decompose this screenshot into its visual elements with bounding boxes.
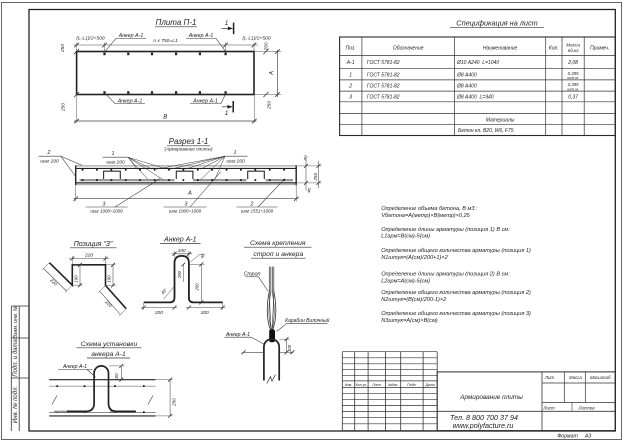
- svg-text:N1штук=(А(см)/200+1)×2: N1штук=(А(см)/200+1)×2: [381, 255, 448, 261]
- svg-text:А3: А3: [584, 434, 591, 440]
- svg-text:1: 1: [225, 110, 229, 117]
- svg-text:А: А: [270, 71, 276, 76]
- svg-text:220: 220: [84, 253, 93, 259]
- svg-text:строп и анкера: строп и анкера: [253, 251, 303, 258]
- svg-text:Vбетона=А(метр)×В(метр)×0,25: Vбетона=А(метр)×В(метр)×0,25: [381, 213, 470, 219]
- svg-text:Ø10 А240 L=1040: Ø10 А240 L=1040: [456, 60, 499, 66]
- svg-text:Подп.: Подп.: [407, 383, 416, 387]
- svg-text:Обозначение: Обозначение: [393, 46, 424, 52]
- svg-text:www.polyfacture.ru: www.polyfacture.ru: [453, 421, 514, 430]
- svg-text:2: 2: [348, 84, 352, 90]
- svg-text:Анкер А-1: Анкер А-1: [163, 237, 197, 244]
- svg-text:100: 100: [178, 248, 186, 253]
- svg-text:Схема крепления: Схема крепления: [250, 240, 306, 247]
- svg-text:анкера А-1: анкера А-1: [91, 351, 126, 358]
- svg-text:190: 190: [74, 275, 79, 283]
- svg-text:100: 100: [114, 373, 119, 381]
- svg-text:250: 250: [177, 270, 182, 279]
- svg-text:Изм.: Изм.: [345, 383, 352, 387]
- svg-text:ГОСТ 5781-82: ГОСТ 5781-82: [367, 94, 400, 100]
- svg-text:Армирование плиты: Армирование плиты: [459, 394, 523, 401]
- svg-text:шаг 1551=1000: шаг 1551=1000: [241, 209, 274, 214]
- svg-text:Позиция “З”: Позиция “З”: [74, 241, 113, 248]
- svg-text:3: 3: [103, 202, 106, 208]
- svg-text:250: 250: [60, 44, 66, 53]
- svg-text:(L-L1)/2+500: (L-L1)/2+500: [76, 36, 104, 42]
- svg-text:ГОСТ 5781-82: ГОСТ 5781-82: [367, 60, 400, 66]
- svg-text:Масса: Масса: [569, 375, 583, 380]
- svg-text:Бетон кл. В20, W6, F75: Бетон кл. В20, W6, F75: [458, 128, 514, 134]
- svg-text:(L-L1)/2+500: (L-L1)/2+500: [242, 36, 270, 42]
- svg-text:шаг 1000=1000: шаг 1000=1000: [169, 209, 202, 214]
- svg-text:Спецификация на лист: Спецификация на лист: [456, 19, 537, 28]
- svg-text:Определение общего количества: Определение общего количества арматуры (…: [381, 311, 531, 317]
- svg-text:1: 1: [234, 150, 237, 156]
- svg-text:шаг 200: шаг 200: [106, 160, 125, 166]
- svg-text:Карабин Вилочный: Карабин Вилочный: [285, 317, 330, 324]
- svg-text:3: 3: [349, 94, 352, 100]
- svg-text:Определение общего количества: Определение общего количества арматуры (…: [381, 248, 531, 254]
- svg-text:200: 200: [200, 310, 209, 316]
- svg-text:ГОСТ 5781-82: ГОСТ 5781-82: [367, 72, 400, 78]
- svg-text:3: 3: [185, 202, 188, 208]
- svg-text:0,37: 0,37: [568, 94, 578, 100]
- svg-text:Дата: Дата: [424, 383, 434, 387]
- svg-text:Плита П-1: Плита П-1: [156, 18, 197, 27]
- svg-text:N3штук=А(см)×В(см): N3штук=А(см)×В(см): [381, 318, 438, 324]
- svg-text:Формат: Формат: [557, 434, 578, 440]
- svg-text:Анкер А-1: Анкер А-1: [225, 332, 250, 338]
- svg-text:Определение длины арматуры (по: Определение длины арматуры (позиция 1) В…: [381, 227, 510, 233]
- svg-text:Определение общего количества: Определение общего количества арматуры (…: [381, 290, 531, 296]
- svg-text:Определение объема бетона, В м: Определение объема бетона, В м3 :: [381, 206, 478, 212]
- svg-text:L2арм=А(см)-5(см): L2арм=А(см)-5(см): [381, 278, 430, 284]
- svg-text:2: 2: [47, 150, 51, 156]
- svg-text:Кол.: Кол.: [549, 46, 559, 52]
- svg-text:L1арм=В(см)-5(см): L1арм=В(см)-5(см): [381, 234, 430, 240]
- svg-text:250: 250: [171, 398, 176, 407]
- svg-text:Определение длины арматуры (по: Определение длины арматуры (позиция 2) В…: [381, 272, 510, 278]
- svg-text:№док.: №док.: [388, 383, 398, 387]
- svg-text:Поз.: Поз.: [346, 46, 356, 52]
- svg-text:Ø8 А400: Ø8 А400: [456, 84, 477, 90]
- svg-text:Примеч.: Примеч.: [590, 46, 609, 52]
- svg-text:Подп. и дата: Подп. и дата: [13, 339, 19, 377]
- svg-text:Лит: Лит: [544, 375, 554, 380]
- svg-text:Анкер А-1: Анкер А-1: [118, 33, 144, 39]
- svg-text:2,08: 2,08: [567, 60, 578, 66]
- svg-text:2: 2: [250, 202, 254, 208]
- svg-text:Строп: Строп: [244, 271, 261, 277]
- svg-text:ед,кг: ед,кг: [568, 48, 579, 53]
- svg-text:шаг 200: шаг 200: [40, 159, 59, 165]
- svg-text:1: 1: [112, 151, 115, 157]
- svg-text:250: 250: [60, 103, 66, 112]
- svg-text:Масштаб: Масштаб: [590, 375, 611, 380]
- svg-text:Наименование: Наименование: [483, 46, 518, 52]
- svg-text:200: 200: [154, 310, 163, 316]
- svg-text:Схема установки: Схема установки: [81, 341, 138, 348]
- svg-text:шаг 200: шаг 200: [226, 159, 245, 165]
- svg-text:250: 250: [195, 283, 200, 292]
- svg-text:Анкер А-1: Анкер А-1: [188, 33, 214, 39]
- svg-text:кг/п.м.: кг/п.м.: [567, 87, 579, 91]
- svg-text:Листов: Листов: [578, 405, 596, 410]
- svg-text:Взам. инв. №: Взам. инв. №: [13, 305, 19, 339]
- svg-text:250: 250: [313, 173, 318, 182]
- svg-text:250: 250: [267, 101, 273, 110]
- svg-text:Материалы: Материалы: [486, 117, 515, 123]
- svg-text:Инв. № подл.: Инв. № подл.: [12, 386, 19, 423]
- svg-text:Ø8 А400 L=940: Ø8 А400 L=940: [456, 94, 494, 100]
- svg-text:190: 190: [107, 275, 112, 283]
- svg-text:Лист: Лист: [371, 383, 381, 387]
- svg-text:1: 1: [349, 72, 352, 78]
- svg-text:ГОСТ 5781-82: ГОСТ 5781-82: [367, 84, 400, 90]
- svg-text:n x 750=L1: n x 750=L1: [153, 38, 178, 44]
- svg-text:1: 1: [225, 20, 229, 27]
- svg-text:Масса: Масса: [566, 43, 580, 48]
- svg-text:А-1: А-1: [346, 60, 355, 66]
- svg-text:В: В: [163, 114, 167, 120]
- svg-text:Ø8 А400: Ø8 А400: [456, 72, 477, 78]
- svg-text:Анкер А-1: Анкер А-1: [62, 364, 87, 370]
- svg-text:250: 250: [264, 42, 270, 51]
- svg-text:(Армирование плиты): (Армирование плиты): [164, 147, 213, 152]
- svg-text:100: 100: [287, 344, 292, 352]
- svg-text:А: А: [187, 191, 192, 197]
- svg-text:N2штук=(В(см)/200-1)×2: N2штук=(В(см)/200-1)×2: [381, 297, 447, 303]
- svg-text:Разрез 1-1: Разрез 1-1: [169, 137, 209, 146]
- svg-text:кг/п.м.: кг/п.м.: [567, 76, 579, 80]
- svg-text:Кол.уч.: Кол.уч.: [356, 383, 367, 387]
- svg-text:шаг 1000=1000: шаг 1000=1000: [90, 209, 123, 214]
- svg-text:Лист: Лист: [542, 405, 555, 410]
